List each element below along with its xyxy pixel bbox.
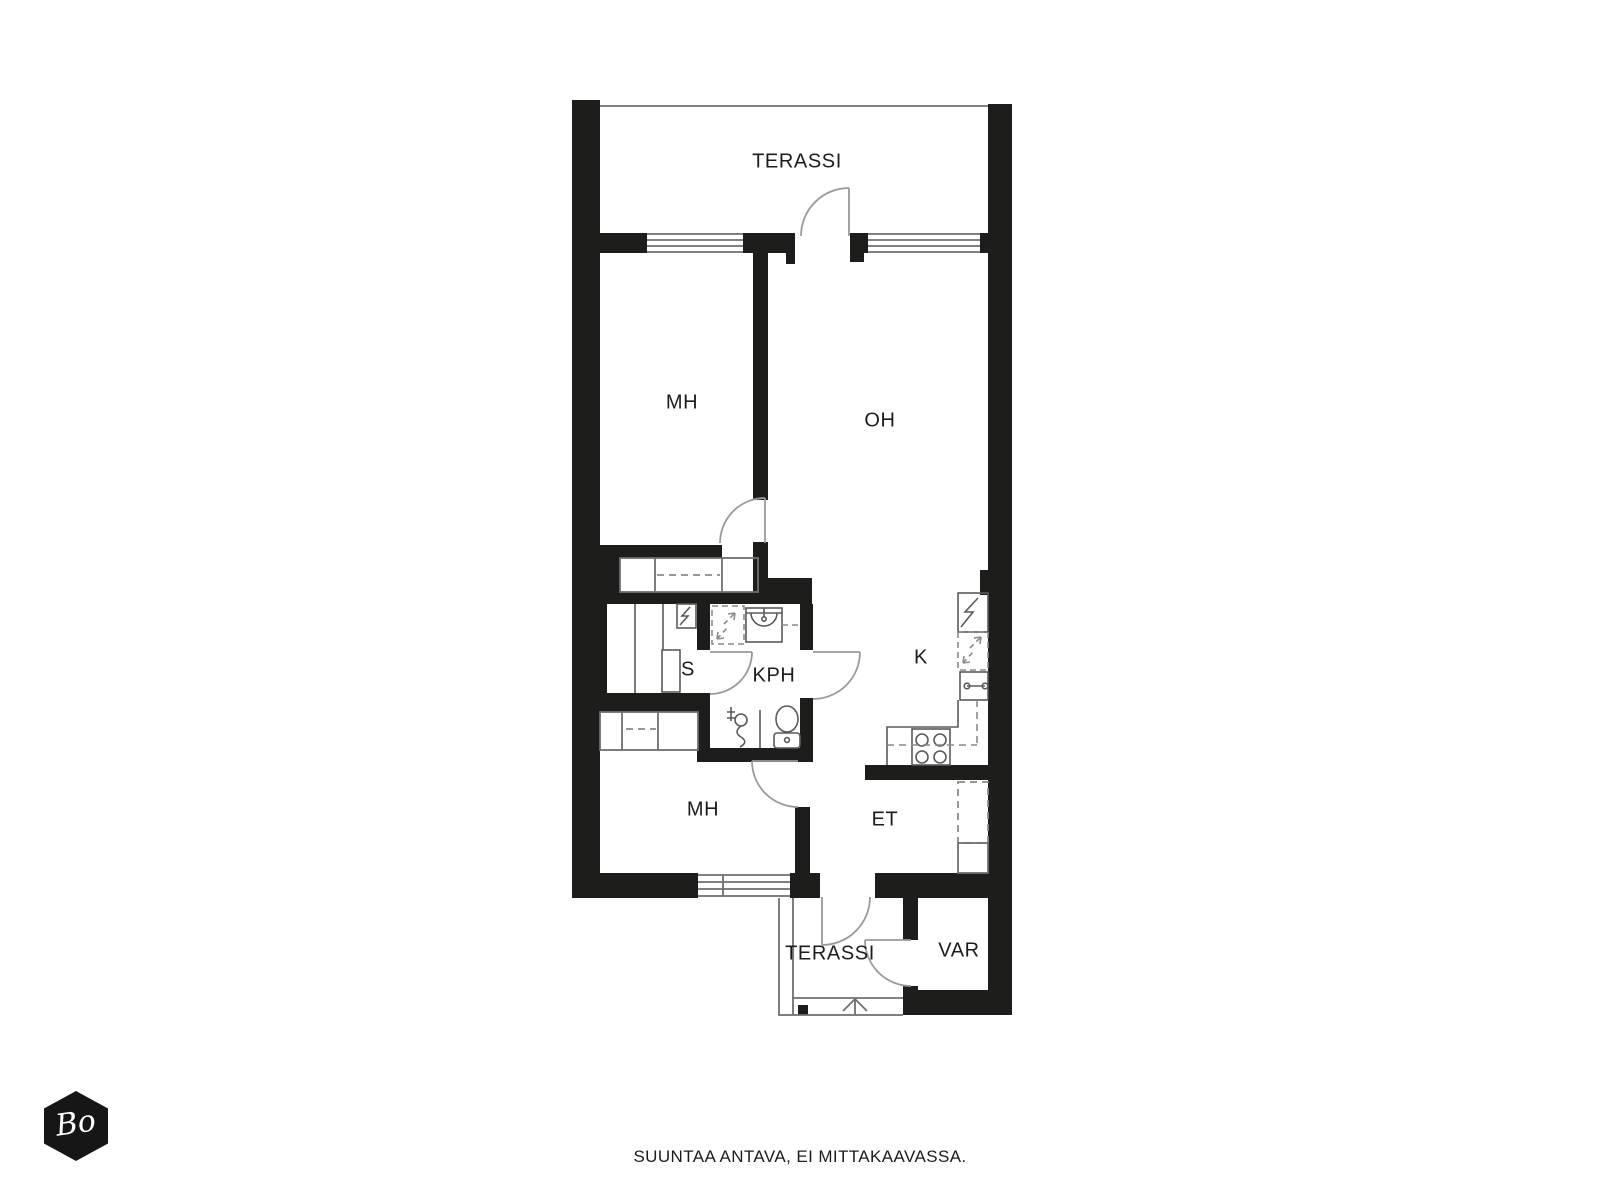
door-entry [822, 897, 870, 945]
wall-bottom-mid [790, 873, 820, 898]
wall-kph-right-upper [800, 604, 813, 650]
wall-segment [600, 233, 647, 253]
closet-mh-bottom [600, 712, 698, 750]
floorplan-page: TERASSI MH OH S KPH K MH ET TERASSI VAR … [0, 0, 1600, 1200]
stove-icon [912, 729, 950, 765]
toilet-icon [774, 706, 800, 748]
door-kph [813, 652, 860, 699]
sauna-bench [662, 650, 680, 692]
wall-above-sauna-kph [600, 592, 812, 604]
bo-logo-text: Bo [54, 1106, 98, 1141]
wall-kph-right-lower [800, 698, 813, 748]
door-sauna [710, 652, 752, 694]
room-label-mh-top: MH [666, 392, 698, 415]
wall-left-exterior [572, 100, 600, 898]
sauna-stove-icon [677, 604, 696, 628]
closet-mh-top [620, 558, 758, 592]
room-label-kitchen: K [914, 647, 928, 670]
wall-bottom-left [572, 873, 698, 898]
kitchen-sink-icon [960, 672, 988, 700]
disclaimer-text: SUUNTAA ANTAVA, EI MITTAKAAVASSA. [633, 1147, 966, 1167]
room-label-terassi-top: TERASSI [752, 151, 842, 174]
kitchen-fixtures [887, 593, 988, 765]
window-mh-top [647, 234, 743, 252]
wall-var-left-upper [903, 892, 918, 940]
wall-jamb [786, 253, 795, 264]
dishwasher-icon [958, 632, 988, 670]
wall-bottom-right [875, 873, 1012, 898]
wall-segment [850, 233, 868, 253]
upper-cabinet-dashed [887, 700, 977, 745]
floorplan-drawing [0, 0, 1600, 1200]
room-label-terassi-bottom: TERASSI [785, 943, 875, 966]
wall-sauna-bottom [600, 693, 710, 712]
wall-jamb [850, 253, 864, 262]
terrace-post [798, 1005, 808, 1015]
wall-sauna-left-thickening [598, 603, 607, 693]
closet-et [958, 782, 988, 873]
kitchen-counter [887, 700, 958, 765]
wall-closet-stub [600, 558, 620, 592]
wall-var-bottom [903, 990, 1012, 1015]
wall-mh-bottom [600, 545, 722, 558]
window-mh-bottom [698, 875, 790, 896]
washing-machine-connection-icon [727, 707, 747, 747]
room-label-oh: OH [864, 410, 895, 433]
wall-segment [980, 233, 988, 253]
room-label-et: ET [872, 809, 899, 832]
shower-icon [712, 606, 744, 644]
door-mh-top [720, 498, 765, 543]
room-label-var: VAR [938, 940, 979, 963]
fridge-icon [958, 593, 988, 632]
room-label-kph: KPH [753, 665, 796, 688]
bathroom-sink-icon [746, 608, 800, 642]
wall-pilaster [980, 570, 988, 595]
stairs-arrow-icon [843, 999, 867, 1015]
door-mh-bottom [752, 761, 798, 807]
wall-segment [743, 233, 795, 253]
door-terrace-top [801, 188, 849, 236]
wall-closet-side [698, 712, 710, 750]
wall-kitchen-bottom [865, 765, 1012, 780]
room-label-sauna: S [681, 659, 695, 682]
window-oh [868, 234, 980, 252]
wall-divider-mh-oh [753, 253, 768, 500]
wall-sauna-kph [697, 604, 710, 650]
wall-kph-bottom [697, 748, 813, 762]
room-label-mh-bottom: MH [687, 799, 719, 822]
wall-divider-mh-et [795, 807, 810, 873]
